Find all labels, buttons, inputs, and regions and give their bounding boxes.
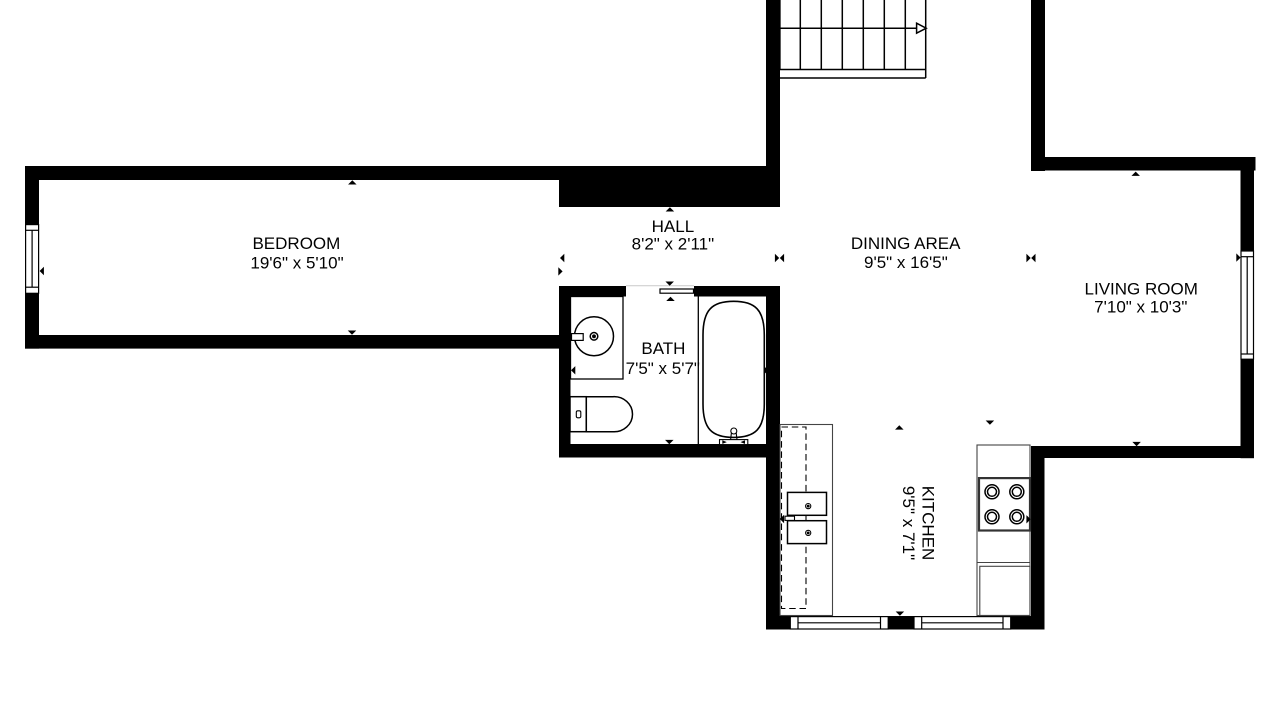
svg-text:9'5" x 7'1": 9'5" x 7'1"	[899, 486, 918, 560]
svg-text:BEDROOM: BEDROOM	[252, 234, 340, 253]
svg-text:BATH: BATH	[641, 339, 685, 358]
svg-text:LIVING ROOM: LIVING ROOM	[1085, 280, 1198, 299]
svg-text:7'5" x 5'7": 7'5" x 5'7"	[626, 359, 700, 378]
svg-text:7'10" x 10'3": 7'10" x 10'3"	[1094, 298, 1187, 317]
svg-text:DINING AREA: DINING AREA	[851, 234, 961, 253]
svg-text:19'6" x 5'10": 19'6" x 5'10"	[250, 254, 343, 273]
svg-text:KITCHEN: KITCHEN	[919, 486, 938, 561]
svg-text:9'5" x 16'5": 9'5" x 16'5"	[864, 253, 948, 272]
svg-text:HALL: HALL	[652, 217, 695, 236]
svg-text:8'2" x 2'11": 8'2" x 2'11"	[632, 235, 715, 254]
